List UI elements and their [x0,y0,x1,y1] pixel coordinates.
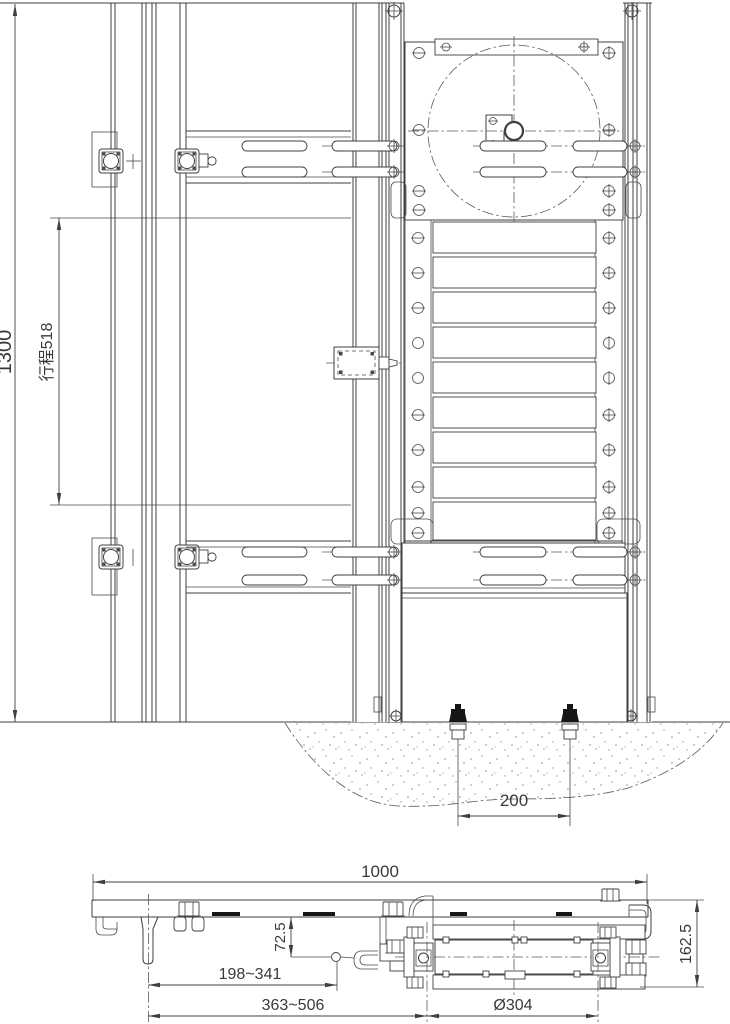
pillow-bearing [175,149,216,173]
wall-rails [111,3,186,722]
front-view: 1300 行程518 200 [0,2,730,826]
dim-reach-range-max-label: 363~506 [262,997,325,1014]
dim-drop-offset-label: 72.5 [272,922,289,951]
ground [0,722,730,806]
drawing-page: 1300 行程518 200 [0,0,730,1024]
ladder-rungs [433,222,596,540]
dim-stroke: 行程518 [38,218,59,505]
dim-roller-diameter: Ø304 [427,997,598,1016]
side-view: 1000 72.5 198~341 363~506 Ø304 162.5 [92,862,704,1022]
dim-overall-length: 1000 [93,862,647,904]
reference-point [291,953,354,962]
top-strap [435,39,598,55]
pillow-bearing [99,149,123,173]
drum-bearing-left [404,927,433,988]
dim-overall-length-label: 1000 [361,862,399,881]
dim-stroke-label: 行程518 [38,323,56,382]
dim-section-height: 162.5 [640,900,704,987]
ladder-frame [405,220,622,543]
dim-overall-height: 1300 [0,4,16,722]
ladder-holes-right [602,231,616,520]
dim-overall-height-label: 1300 [0,330,16,375]
ladder-holes-left [411,233,425,519]
dim-anchor-spacing-label: 200 [500,791,528,810]
dim-drop-offset: 72.5 [272,917,291,957]
beam-left-hook [96,917,117,935]
pillow-bearing [175,545,216,569]
motor-plate [405,36,645,230]
dim-reach-range-min-label: 198~341 [219,966,282,983]
technical-drawing: 1300 行程518 200 [0,0,730,1024]
clevis-fork [354,951,378,969]
dim-reach-range-min: 198~341 [148,962,337,991]
dim-roller-diameter-label: Ø304 [493,997,532,1014]
pillow-bearing [99,545,123,569]
dim-reach-range-max: 363~506 [148,997,427,1016]
dim-section-height-label: 162.5 [678,924,695,964]
rail-section [141,894,158,1022]
base-plate [402,593,627,722]
hub-shaft [505,122,523,140]
